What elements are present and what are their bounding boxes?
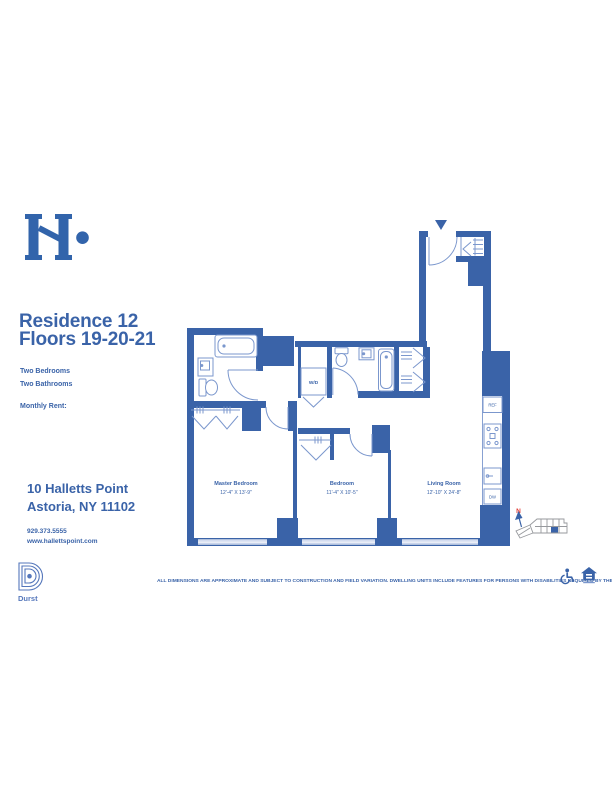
bathroom-door [333, 368, 358, 395]
bedrooms-label: Two Bedrooms [20, 365, 72, 378]
h-logo [24, 214, 92, 260]
room-labels: Master Bedroom 12'-4" X 13'-9" Bedroom 1… [214, 481, 461, 496]
bathtub-icon [379, 349, 395, 391]
page-title: Residence 12 Floors 19-20-21 [19, 313, 155, 349]
walls [187, 231, 510, 546]
stove-icon [484, 424, 501, 448]
unit-highlight [551, 527, 558, 533]
washer-dryer: W/D [301, 368, 326, 407]
address-line2: Astoria, NY 11102 [27, 498, 135, 516]
room-name: Bedroom [330, 481, 354, 487]
key-plan: N [506, 503, 568, 551]
master-bedroom-door [266, 407, 288, 429]
sink-icon [198, 358, 213, 376]
durst-logo: Durst [16, 561, 50, 603]
unit-summary: Two Bedrooms Two Bathrooms [20, 365, 72, 391]
sink-icon [359, 348, 374, 360]
bathrooms-label: Two Bathrooms [20, 378, 72, 391]
master-bath-door [228, 370, 258, 400]
address-block: 10 Halletts Point Astoria, NY 11102 [27, 480, 135, 515]
master-bathroom [198, 335, 257, 396]
disclaimer: ALL DIMENSIONS ARE APPROXIMATE AND SUBJE… [157, 573, 567, 587]
room-dimensions: 12'-10" X 24'-8" [427, 490, 462, 496]
contact-block: 929.373.5555 www.hallettspoint.com [27, 527, 98, 547]
floors-title: Floors 19-20-21 [19, 331, 155, 349]
floor-plan: W/D REF DW [180, 218, 515, 568]
refrigerator-icon: REF [483, 397, 502, 413]
bathtub-icon [215, 335, 257, 357]
building-footprint [516, 519, 567, 538]
refrigerator-label: REF [488, 403, 497, 408]
washer-dryer-label: W/D [309, 380, 319, 386]
master-closet [191, 407, 240, 430]
room-dimensions: 12'-4" X 13'-9" [220, 490, 252, 496]
room-name: Living Room [427, 481, 460, 487]
durst-dot [27, 574, 32, 579]
bedroom-closet [299, 437, 331, 461]
dishwasher-icon: DW [484, 489, 501, 504]
entry-arrow-icon [435, 220, 447, 230]
disclaimer-text: ALL DIMENSIONS ARE APPROXIMATE AND SUBJE… [157, 578, 567, 584]
bathroom [335, 348, 394, 391]
room-name: Master Bedroom [214, 481, 258, 487]
phone-number: 929.373.5555 [27, 527, 98, 537]
equal-housing-icon [581, 567, 597, 585]
hall-closet [401, 348, 425, 392]
kitchen-sink-icon [484, 468, 501, 484]
flyer-page: Residence 12 Floors 19-20-21 Two Bedroom… [0, 0, 612, 792]
entry-door [429, 237, 457, 265]
dishwasher-label: DW [489, 495, 496, 500]
entry-closet [463, 238, 483, 256]
monthly-rent-label: Monthly Rent: [20, 403, 67, 410]
windows [198, 539, 478, 544]
toilet-icon [335, 348, 348, 367]
address-line1: 10 Halletts Point [27, 480, 135, 498]
wheelchair-icon [560, 568, 576, 585]
kitchen: REF DW [483, 396, 503, 505]
room-dimensions: 11'-4" X 10'-5" [326, 490, 357, 496]
bedroom-door [350, 434, 372, 456]
toilet-icon [199, 379, 218, 396]
website-url: www.hallettspoint.com [27, 537, 98, 547]
durst-label: Durst [18, 594, 38, 603]
